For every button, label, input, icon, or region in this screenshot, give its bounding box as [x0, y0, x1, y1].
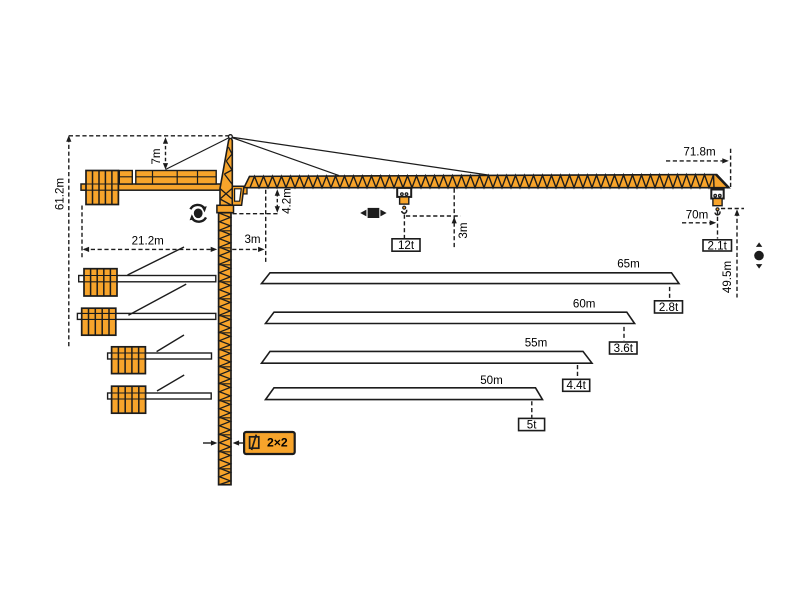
svg-text:61.2m: 61.2m — [54, 178, 67, 210]
svg-text:55m: 55m — [525, 336, 548, 349]
svg-text:3m: 3m — [244, 233, 260, 246]
svg-text:21.2m: 21.2m — [132, 235, 164, 248]
svg-text:12t: 12t — [398, 239, 415, 252]
svg-text:2.1t: 2.1t — [708, 239, 728, 252]
svg-text:3m: 3m — [457, 222, 470, 238]
svg-text:50m: 50m — [480, 374, 503, 387]
svg-text:7m: 7m — [150, 148, 163, 164]
svg-text:60m: 60m — [573, 297, 596, 310]
svg-text:49.5m: 49.5m — [721, 261, 734, 293]
svg-text:4.4t: 4.4t — [567, 379, 587, 392]
svg-text:5t: 5t — [527, 418, 537, 431]
svg-text:70m: 70m — [686, 209, 709, 222]
svg-text:2×2: 2×2 — [267, 435, 288, 449]
svg-text:65m: 65m — [617, 257, 640, 270]
svg-text:2.8t: 2.8t — [659, 301, 679, 314]
svg-text:4.2m: 4.2m — [281, 188, 294, 214]
svg-text:71.8m: 71.8m — [683, 145, 715, 158]
svg-text:3.6t: 3.6t — [614, 342, 634, 355]
